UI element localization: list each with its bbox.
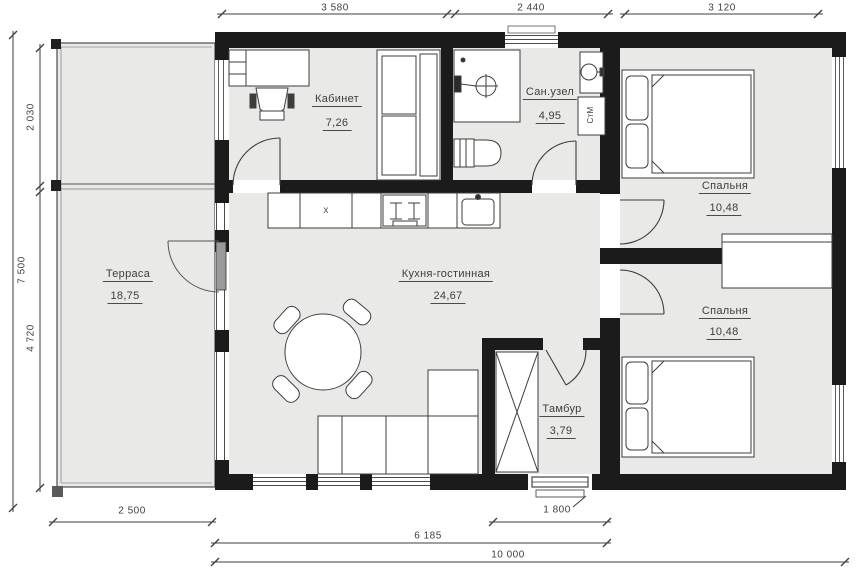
bedroom-top-window xyxy=(832,57,846,168)
shower xyxy=(454,50,520,122)
room-area-vestibule: 3,79 xyxy=(547,425,576,439)
room-label-vestibule: Тамбур xyxy=(539,403,584,417)
dim-left-total: 7 500 xyxy=(17,256,28,284)
toilet xyxy=(454,139,501,167)
room-area-office: 7,26 xyxy=(323,117,352,131)
floor-plan-drawing xyxy=(0,0,862,574)
built-in-wardrobe xyxy=(722,234,832,288)
dim-left-seg-2: 4 720 xyxy=(26,324,37,352)
room-label-bedroom-top: Спальня xyxy=(699,180,751,194)
dim-top-1: 3 580 xyxy=(321,3,349,14)
room-area-bedroom-bottom: 10,48 xyxy=(706,326,741,340)
room-area-kitchen-living: 24,67 xyxy=(430,290,465,304)
terrace-post xyxy=(51,180,61,191)
entrance-door xyxy=(528,474,592,497)
dim-bottom-main: 6 185 xyxy=(414,531,442,542)
fridge-mark-label: x xyxy=(320,205,331,217)
room-area-terrace: 18,75 xyxy=(107,290,142,304)
bedroom-bottom-window xyxy=(832,385,846,462)
bed-bottom xyxy=(622,357,754,457)
floor-plan-canvas: 3 580 2 440 3 120 7 500 2 030 4 720 2 50… xyxy=(0,0,862,574)
desk xyxy=(229,50,309,86)
dim-bottom-total: 10 000 xyxy=(491,550,525,561)
dim-bottom-entrance: 1 800 xyxy=(543,505,571,516)
office-couch xyxy=(377,50,440,180)
dim-top-2: 2 440 xyxy=(517,3,545,14)
office-window xyxy=(215,60,229,140)
room-label-bathroom: Сан.узел xyxy=(523,86,577,100)
room-label-bedroom-bottom: Спальня xyxy=(699,305,751,319)
terrace-door-panel xyxy=(216,242,226,290)
bathroom-sink xyxy=(580,52,604,93)
stove xyxy=(383,195,426,226)
kitchen-sink xyxy=(462,195,494,226)
washing-machine-label: СтМ xyxy=(586,103,596,126)
dim-top-3: 3 120 xyxy=(708,3,736,14)
dim-left-seg-1: 2 030 xyxy=(26,103,37,131)
room-label-kitchen-living: Кухня-гостинная xyxy=(399,268,493,282)
vestibule-closet xyxy=(496,352,538,472)
living-windows xyxy=(253,474,430,490)
room-area-bathroom: 4,95 xyxy=(536,110,565,124)
terrace-post xyxy=(51,39,61,49)
dim-bottom-terrace: 2 500 xyxy=(118,506,146,517)
bed-top xyxy=(622,70,754,178)
room-area-bedroom-top: 10,48 xyxy=(706,202,741,216)
room-label-terrace: Терраса xyxy=(103,268,153,282)
bathroom-window xyxy=(505,26,558,48)
terrace-post xyxy=(52,486,63,497)
dining-table xyxy=(285,314,361,390)
room-label-office: Кабинет xyxy=(312,93,362,107)
